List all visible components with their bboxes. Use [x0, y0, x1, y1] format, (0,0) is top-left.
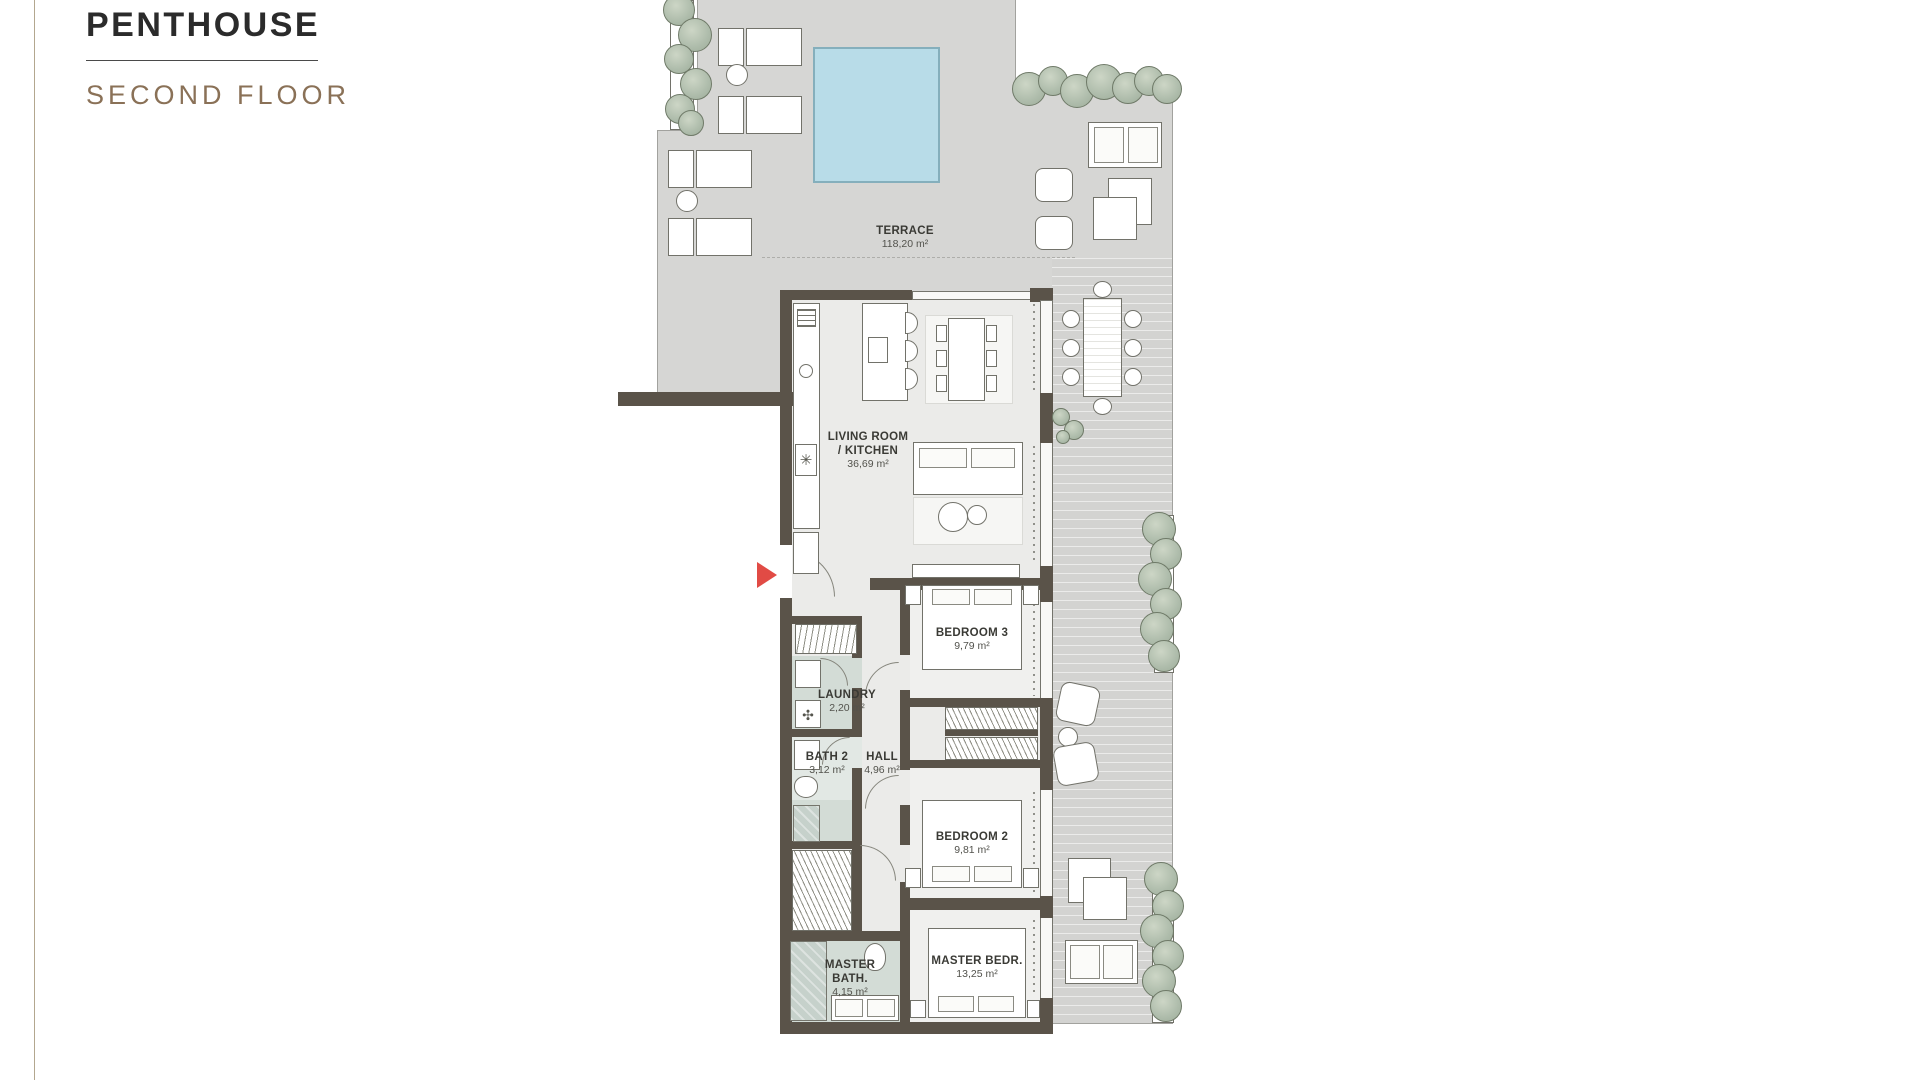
- sofa-cushion: [971, 448, 1015, 468]
- oven-icon: [797, 309, 816, 327]
- window-symbol: [1033, 920, 1035, 996]
- outdoor-armchair: [1035, 168, 1073, 202]
- nightstand: [1023, 868, 1039, 888]
- dining-table: [948, 318, 985, 401]
- hall-label: HALL 4,96 m²: [864, 750, 900, 777]
- pillow: [932, 589, 970, 605]
- wall-west-upper: [780, 290, 792, 545]
- laundry-label: LAUNDRY 2,20 m²: [818, 688, 876, 715]
- nightstand: [1023, 585, 1039, 605]
- pillow: [932, 866, 970, 882]
- dining-chair: [1062, 368, 1080, 386]
- page-title: PENTHOUSE: [86, 6, 320, 45]
- terrace-edge: [657, 130, 658, 402]
- daybed-cushion: [1103, 945, 1133, 979]
- page-subtitle: SECOND FLOOR: [86, 80, 350, 111]
- nightstand: [1027, 1000, 1040, 1018]
- terrace-edge: [1052, 1023, 1173, 1024]
- dining-chair: [936, 375, 947, 392]
- wall-bedroom2-master: [900, 898, 1040, 910]
- dining-chair: [1124, 339, 1142, 357]
- title-underline: [86, 60, 318, 61]
- outdoor-armchair: [1035, 216, 1073, 250]
- sun-lounger: [718, 28, 744, 66]
- pillow: [974, 589, 1012, 605]
- terrace-slab-join: [1015, 258, 1052, 292]
- plant: [1150, 990, 1182, 1022]
- dining-chair: [936, 325, 947, 342]
- window-symbol: [1033, 604, 1035, 696]
- plant: [1152, 74, 1182, 104]
- outdoor-armchair: [1054, 680, 1101, 727]
- side-table: [726, 64, 748, 86]
- washing-machine: [795, 660, 821, 688]
- sun-lounger: [746, 96, 802, 134]
- wardrobe: [945, 707, 1038, 730]
- outdoor-dining-table: [1083, 298, 1122, 397]
- plant: [678, 110, 704, 136]
- sofa-cushion: [1094, 127, 1124, 163]
- wall-master-bath-north: [788, 931, 905, 941]
- window-symbol: [1033, 446, 1035, 564]
- kitchen-sink-icon: [799, 364, 813, 378]
- dining-chair: [986, 375, 997, 392]
- wall-wardrobe-divider: [945, 730, 1038, 736]
- master-bedroom-label: MASTER BEDR. 13,25 m²: [931, 954, 1022, 981]
- wall-east-pier: [1040, 998, 1053, 1022]
- plant: [1148, 640, 1180, 672]
- coffee-table-round: [938, 502, 968, 532]
- sun-lounger: [718, 96, 744, 134]
- dining-chair: [936, 350, 947, 367]
- wall-east-pier: [1040, 896, 1053, 918]
- dining-chair: [1062, 310, 1080, 328]
- sofa-cushion: [919, 448, 967, 468]
- floor-plan-page: { "title": "PENTHOUSE", "subtitle": "SEC…: [0, 0, 1920, 1080]
- pillow: [938, 996, 974, 1012]
- dining-chair: [1093, 281, 1112, 298]
- master-shower: [790, 941, 827, 1021]
- sun-lounger: [696, 218, 752, 256]
- daybed-cushion: [1070, 945, 1100, 979]
- wall-north: [780, 290, 912, 300]
- vanity-sink: [835, 999, 863, 1017]
- outdoor-armchair: [1052, 741, 1100, 788]
- sun-lounger: [746, 28, 802, 66]
- bedroom3-label: BEDROOM 3 9,79 m²: [936, 626, 1008, 653]
- wall-east-pier: [1040, 566, 1053, 602]
- wall-hall-bedrooms: [900, 805, 910, 845]
- nightstand: [905, 585, 921, 605]
- toilet: [794, 776, 818, 798]
- page-margin-rule: [34, 0, 35, 1080]
- bath2-label: BATH 2 3,12 m²: [806, 750, 848, 777]
- sun-lounger: [668, 218, 694, 256]
- window-symbol: [1033, 304, 1035, 390]
- vanity-sink: [867, 999, 895, 1017]
- sofa-cushion: [1128, 127, 1158, 163]
- terrace-slab-left: [657, 290, 793, 402]
- master-closet: [792, 850, 852, 931]
- living-room-label: LIVING ROOM / KITCHEN 36,69 m²: [828, 430, 909, 471]
- bedroom2-label: BEDROOM 2 9,81 m²: [936, 830, 1008, 857]
- window-north: [912, 291, 1032, 300]
- pillow: [974, 866, 1012, 882]
- coffee-table-round: [967, 505, 987, 525]
- terrace-label: TERRACE 118,20 m²: [876, 224, 934, 251]
- closet: [795, 624, 857, 654]
- dining-chair: [1093, 398, 1112, 415]
- dining-chair: [1124, 368, 1142, 386]
- dining-chair: [986, 350, 997, 367]
- side-table: [676, 190, 698, 212]
- dining-chair: [1124, 310, 1142, 328]
- roof-overhang-dashed-line: [762, 257, 1075, 258]
- wall-bedroom2-north: [900, 760, 1040, 768]
- wall-east-pier: [1040, 393, 1053, 443]
- pillow: [978, 996, 1014, 1012]
- shower: [793, 805, 820, 842]
- entrance-arrow-icon: [757, 562, 777, 588]
- dining-chair: [1062, 339, 1080, 357]
- wall-west-wing: [618, 392, 793, 406]
- wall-south: [780, 1022, 1053, 1034]
- dining-chair: [986, 325, 997, 342]
- terrace-edge: [1015, 0, 1016, 86]
- kitchen-cabinet: [793, 532, 819, 574]
- coffee-table: [1093, 197, 1137, 240]
- wall-bedroom3-south: [900, 698, 1040, 707]
- kitchen-counter: [793, 303, 820, 529]
- nightstand: [905, 868, 921, 888]
- island-sink: [868, 337, 888, 363]
- sun-lounger: [668, 150, 694, 188]
- wardrobe: [945, 737, 1038, 760]
- master-bath-label: MASTER BATH. 4,15 m²: [825, 958, 875, 999]
- coffee-table: [1083, 877, 1127, 920]
- wall-east-pier: [1040, 698, 1053, 790]
- nightstand: [910, 1000, 926, 1018]
- sun-lounger: [696, 150, 752, 188]
- cooktop-icon: ✳: [795, 444, 817, 476]
- plant: [1056, 430, 1070, 444]
- tv-sideboard: [912, 564, 1020, 578]
- pool: [813, 47, 940, 183]
